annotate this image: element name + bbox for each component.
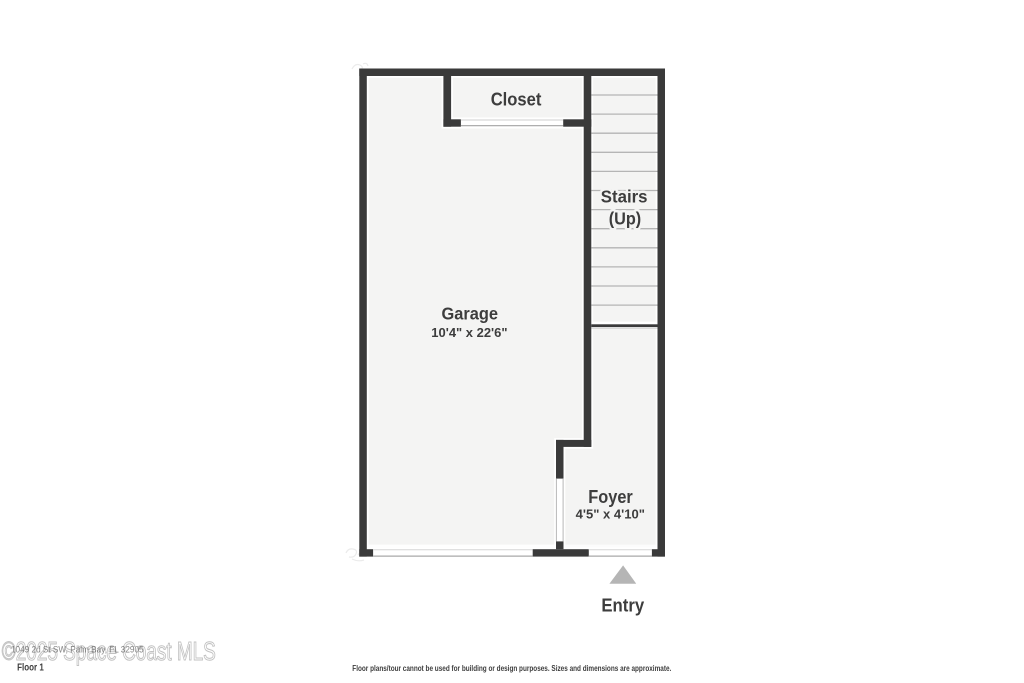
svg-text:Stairs: Stairs <box>601 187 648 207</box>
svg-text:Foyer: Foyer <box>588 487 633 507</box>
svg-text:1049 2d St SW, Palm Bay, FL 32: 1049 2d St SW, Palm Bay, FL 32905 <box>11 645 144 655</box>
svg-text:10'4" x 22'6": 10'4" x 22'6" <box>431 325 507 340</box>
svg-text:Entry: Entry <box>601 595 644 616</box>
svg-text:Floor plans/tour cannot be use: Floor plans/tour cannot be used for buil… <box>352 663 671 673</box>
svg-text:4'5" x 4'10": 4'5" x 4'10" <box>576 507 645 522</box>
svg-text:Garage: Garage <box>442 303 499 323</box>
svg-text:Closet: Closet <box>491 88 542 109</box>
svg-text:(Up): (Up) <box>609 209 642 229</box>
svg-text:Floor 1: Floor 1 <box>17 662 44 673</box>
